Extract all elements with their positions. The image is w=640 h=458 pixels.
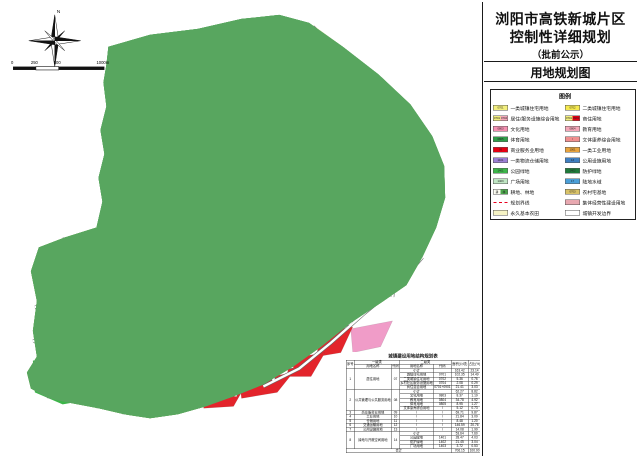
legend-item: 0702二类城镇住宅用地 bbox=[565, 103, 636, 114]
plan-title-line1: 浏阳市高铁新城片区 bbox=[484, 9, 637, 29]
legend-label: 广场用地 bbox=[511, 178, 530, 185]
legend-item: 集体经营性建设用地 bbox=[565, 197, 636, 208]
plan-title-line2: 控制性详细规划 bbox=[484, 27, 637, 47]
legend-label: 一类工业用地 bbox=[583, 146, 612, 153]
legend-label: 集体经营性建设用地 bbox=[583, 199, 626, 206]
table-cell: 1 bbox=[346, 369, 354, 390]
table-cell: 20.76 bbox=[468, 423, 480, 427]
legend-item: 13公用设施用地 bbox=[565, 155, 636, 166]
table-cell: 0701+0901 bbox=[434, 385, 452, 389]
table-cell: 面积(公顷) bbox=[451, 360, 468, 368]
legend-swatch: 0701 bbox=[493, 105, 508, 111]
legend-swatch: 0805 bbox=[493, 137, 508, 143]
legend-swatch: 1101 bbox=[493, 158, 508, 164]
compass-north-label: N bbox=[57, 9, 61, 15]
table-cell: 占比(%) bbox=[468, 360, 480, 368]
legend-label: 教育用地 bbox=[583, 125, 602, 132]
legend-swatch: 1001 bbox=[565, 147, 580, 153]
legend-label: 文化用地 bbox=[511, 125, 530, 132]
legend-swatch: / bbox=[565, 137, 580, 143]
legend-item: /文体康养综合用地 bbox=[565, 134, 636, 145]
legend-item: 07010901商住用地 bbox=[565, 113, 636, 124]
legend-label: 城镇开发边界 bbox=[583, 209, 612, 216]
legend-swatch: 0702 bbox=[565, 105, 580, 111]
legend-item: 07010704居住/服务设施综合用地 bbox=[493, 113, 565, 124]
legend-swatch: 09 bbox=[493, 147, 508, 153]
scale-label-500: 500 bbox=[54, 60, 62, 65]
legend-item: 0805体育用地 bbox=[493, 134, 565, 145]
legend-label: 规划界线 bbox=[511, 199, 530, 206]
legend-label: 农村宅基地 bbox=[583, 188, 607, 195]
legend-item: 0703农村宅基地 bbox=[565, 187, 636, 198]
legend-swatch bbox=[493, 210, 508, 216]
legend-label: 防护绿地 bbox=[583, 167, 602, 174]
landuse-structure-table: 城镇建设用地结构规划表 序号一级类二级类面积(公顷)占比(%)用地名称代码用地名… bbox=[346, 352, 480, 455]
legend-swatch: 17 bbox=[565, 179, 580, 185]
legend-label: 商业服务业用地 bbox=[511, 146, 544, 153]
legend-swatch: 0804 bbox=[565, 126, 580, 132]
legend-swatch: 13 bbox=[565, 158, 580, 164]
table-cell: 代码 bbox=[392, 364, 400, 368]
legend-label: 文体康养综合用地 bbox=[583, 136, 621, 143]
legend-label: 体育用地 bbox=[511, 136, 530, 143]
table-cell: 14.49 bbox=[468, 373, 480, 377]
table-cell: 14 bbox=[392, 432, 400, 449]
legend-swatch: 07010901 bbox=[565, 116, 580, 122]
table-title: 城镇建设用地结构规划表 bbox=[346, 353, 480, 360]
divider bbox=[484, 81, 637, 82]
legend-swatch: 1402 bbox=[565, 168, 580, 174]
legend-item: 城镇开发边界 bbox=[565, 208, 636, 219]
legend-label: 商住用地 bbox=[583, 115, 602, 122]
scale-label-1000: 1000m bbox=[96, 60, 109, 65]
table-grid: 序号一级类二级类面积(公顷)占比(%)用地名称代码用地名称代码1居住用地07小计… bbox=[346, 360, 480, 453]
scale-label-250: 250 bbox=[31, 60, 39, 65]
legend-item: 1101一类物流仓储用地 bbox=[493, 155, 565, 166]
panel-divider bbox=[482, 2, 483, 456]
legend-label: 公园绿地 bbox=[511, 167, 530, 174]
compass-icon: N bbox=[29, 9, 81, 67]
legend-column-left: 0701一类城镇住宅用地07010704居住/服务设施综合用地0803文化用地0… bbox=[493, 103, 565, 219]
legend-label: 二类城镇住宅用地 bbox=[583, 104, 621, 111]
legend-item: 0804教育用地 bbox=[565, 124, 636, 135]
legend-swatch bbox=[565, 210, 580, 216]
legend-label: 耕地、林地 bbox=[511, 188, 535, 195]
legend-item: 1001一类工业用地 bbox=[565, 145, 636, 156]
legend-swatch: 0703 bbox=[565, 189, 580, 195]
legend-item: 1402防护绿地 bbox=[565, 166, 636, 177]
plan-subtitle: （批前公示） bbox=[484, 47, 637, 61]
legend-label: 公用设施用地 bbox=[583, 157, 612, 164]
legend-item: 09商业服务业用地 bbox=[493, 145, 565, 156]
legend-heading: 图例 bbox=[493, 92, 636, 101]
title-panel: 浏阳市高铁新城片区 控制性详细规划 （批前公示） 用地规划图 图例 0701一类… bbox=[484, 3, 637, 455]
table-row: 合计706.15100.00 bbox=[346, 449, 480, 453]
legend-swatch bbox=[565, 200, 580, 206]
scale-bar: 0 250 500 1000m bbox=[11, 60, 110, 70]
legend-swatch: 07010704 bbox=[493, 116, 508, 122]
legend-column-right: 0702二类城镇住宅用地07010901商住用地0804教育用地/文体康养综合用… bbox=[565, 103, 636, 219]
legend-item: 0803文化用地 bbox=[493, 124, 565, 135]
table-cell: 序号 bbox=[346, 360, 354, 368]
table-cell: 2 bbox=[346, 390, 354, 411]
legend-item: 耕林耕地、林地 bbox=[493, 187, 565, 198]
legend-label: 一类城镇住宅用地 bbox=[511, 104, 549, 111]
planning-notice-page: N 0 250 500 1000m 浏阳市高铁新城片区 控制性详细规划 （批前公… bbox=[0, 0, 640, 458]
table-cell: 公共管理与公共服务用地 bbox=[354, 390, 391, 411]
table-cell: 706.15 bbox=[451, 449, 468, 453]
scale-label-0: 0 bbox=[11, 60, 14, 65]
table-cell: 居住用地 bbox=[354, 369, 391, 390]
legend-item: 0701一类城镇住宅用地 bbox=[493, 103, 565, 114]
legend-item: 1403广场用地 bbox=[493, 176, 565, 187]
legend-swatch: 0803 bbox=[493, 126, 508, 132]
table-cell: 绿地与开敞空间用地 bbox=[354, 432, 391, 449]
legend-item: 1401公园绿地 bbox=[493, 166, 565, 177]
table-cell: 100.00 bbox=[468, 449, 480, 453]
legend-swatch: 1401 bbox=[493, 168, 508, 174]
legend-label: 一类物流仓储用地 bbox=[511, 157, 549, 164]
legend-item: 17陆地水域 bbox=[565, 176, 636, 187]
legend-label: 居住/服务设施综合用地 bbox=[511, 115, 560, 122]
legend-label: 陆地水域 bbox=[583, 178, 602, 185]
legend-item: 永久基本农田 bbox=[493, 208, 565, 219]
table-cell: 07 bbox=[392, 369, 400, 390]
legend-label: 永久基本农田 bbox=[511, 209, 540, 216]
table-cell: 合计 bbox=[346, 449, 451, 453]
legend-item: 规划界线 bbox=[493, 197, 565, 208]
divider bbox=[484, 61, 637, 62]
legend: 图例 0701一类城镇住宅用地07010704居住/服务设施综合用地0803文化… bbox=[490, 89, 636, 220]
legend-swatch: 耕林 bbox=[493, 189, 508, 195]
legend-swatch: 1403 bbox=[493, 179, 508, 185]
map-sheet-title: 用地规划图 bbox=[484, 64, 637, 81]
table-cell: 08 bbox=[392, 390, 400, 411]
table-cell: 8 bbox=[346, 432, 354, 449]
legend-swatch bbox=[493, 200, 508, 206]
